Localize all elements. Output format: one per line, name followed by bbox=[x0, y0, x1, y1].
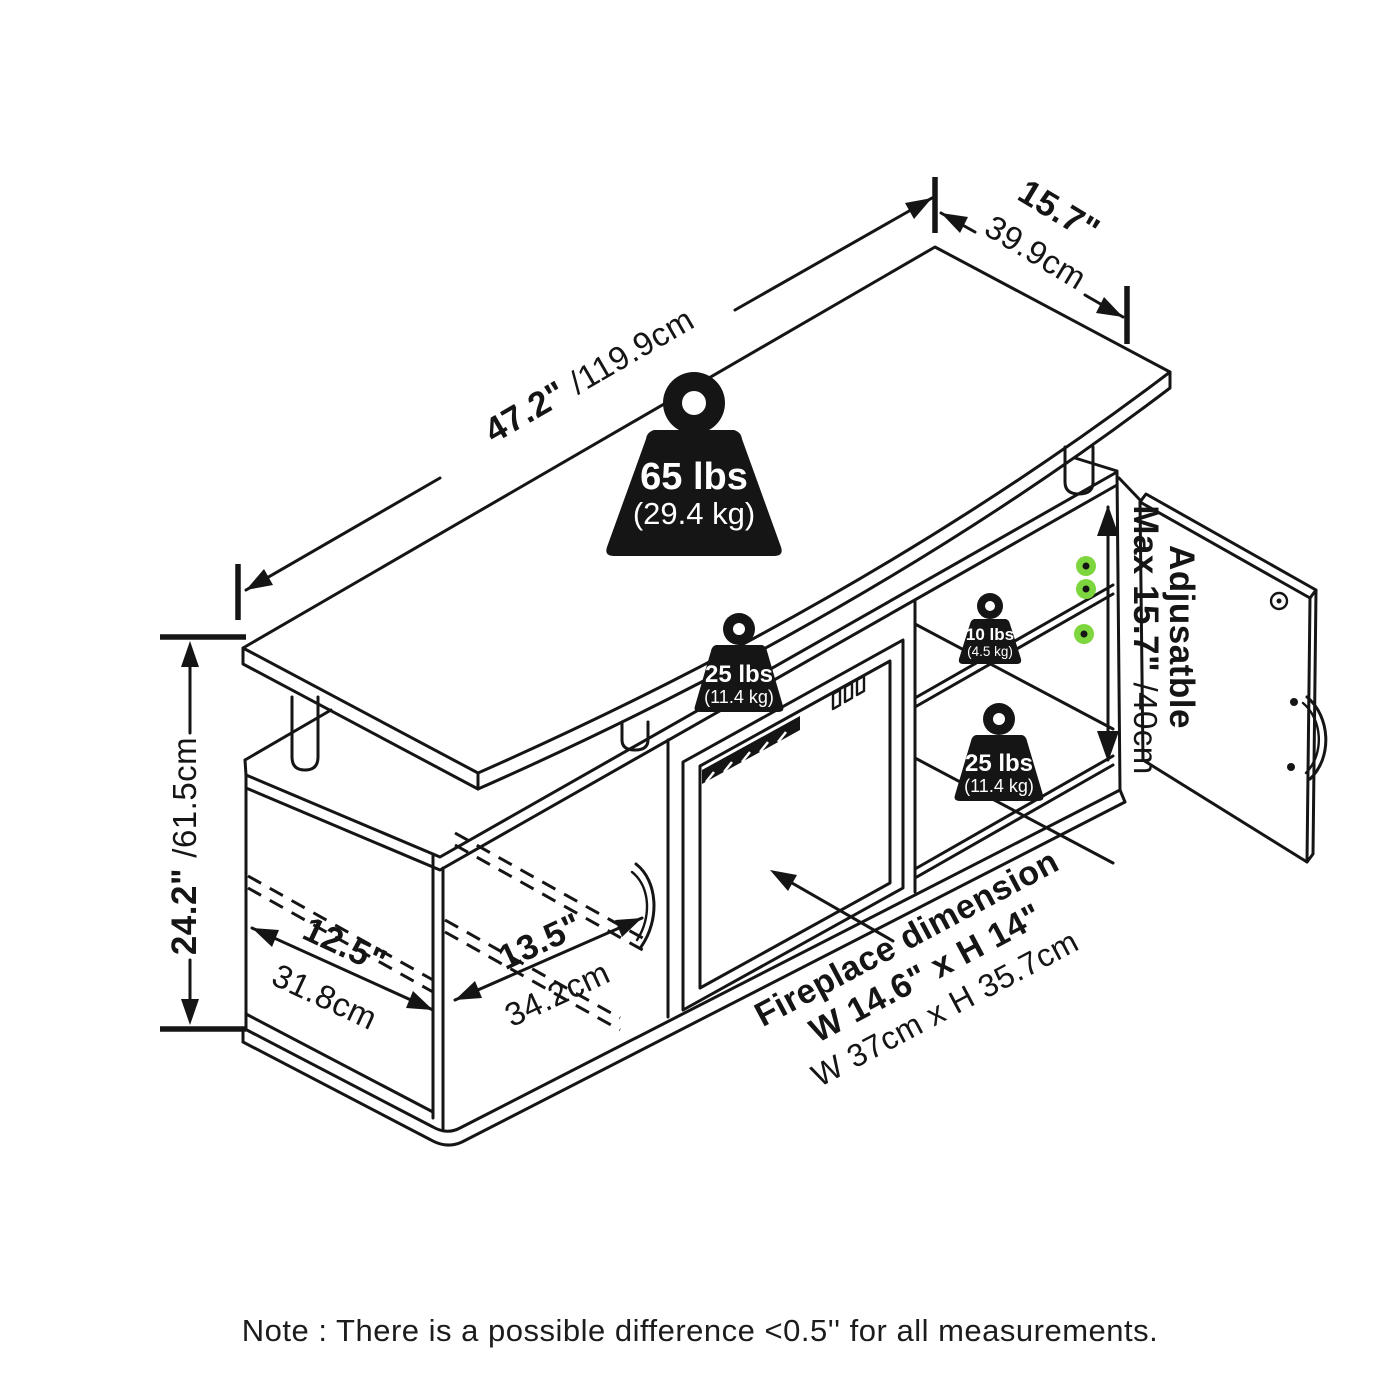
weight-icon-ring-hole bbox=[985, 601, 995, 611]
dim-center-door-width: 13.5" 34.2cm bbox=[455, 905, 642, 1033]
dim-top-width: 47.2" /119.9cm bbox=[238, 177, 935, 620]
dim-left-door-arrow-left bbox=[252, 928, 279, 947]
weight-middle-kg: (11.4 kg) bbox=[704, 687, 774, 707]
left-door-bottom-edge bbox=[246, 1014, 433, 1112]
weight-right-upper-kg: (4.5 kg) bbox=[967, 644, 1013, 659]
dim-depth-arrow-left bbox=[941, 213, 968, 233]
measurement-note: Note : There is a possible difference <0… bbox=[242, 1313, 1158, 1348]
weight-top-lbs: 65 lbs bbox=[640, 456, 748, 498]
weight-top-panel: 65 lbs (29.4 kg) bbox=[606, 372, 781, 556]
fireplace-switch-2 bbox=[845, 683, 852, 702]
dim-depth-arrow-right bbox=[1096, 297, 1123, 317]
open-door-handle-inner bbox=[1303, 703, 1319, 773]
dimension-diagram: 47.2" /119.9cm 15.7" 39.9cm 24.2" /61.5c… bbox=[0, 0, 1400, 1400]
open-door-hinge-line bbox=[1119, 478, 1141, 501]
dim-adjustable-shelf: Adjusatble Max 15.7" /40cm bbox=[1097, 505, 1201, 775]
shelf-pin-3-center bbox=[1081, 631, 1088, 638]
door-screw-center bbox=[1277, 599, 1282, 604]
body-top-right-edge bbox=[1075, 458, 1117, 471]
fireplace-callout-arrow bbox=[770, 870, 797, 891]
dim-top-depth: 15.7" 39.9cm bbox=[941, 172, 1127, 344]
dim-width-line-2 bbox=[735, 198, 932, 310]
weight-right-lower-lbs: 25 lbs bbox=[965, 750, 1033, 777]
body-right-edge bbox=[1117, 472, 1120, 790]
weight-top-kg: (29.4 kg) bbox=[633, 496, 755, 531]
weight-right-upper-lbs: 10 lbs bbox=[966, 625, 1014, 644]
fireplace-switch-3 bbox=[857, 676, 864, 695]
dim-adjustable-line1: Adjusatble bbox=[1162, 545, 1201, 729]
dim-height: 24.2" /61.5cm bbox=[160, 637, 246, 1029]
fireplace-switch-1 bbox=[833, 690, 840, 709]
weight-icon-ring-hole bbox=[993, 713, 1005, 725]
dim-adjustable-line2: Max 15.7" /40cm bbox=[1126, 505, 1165, 775]
dim-top-width-label: 47.2" /119.9cm bbox=[478, 299, 701, 450]
dim-height-arrow-down bbox=[181, 999, 199, 1025]
dim-width-line-1 bbox=[246, 478, 440, 590]
dim-height-label: 24.2" /61.5cm bbox=[165, 737, 204, 955]
door-hole-2 bbox=[1287, 763, 1295, 771]
fireplace-vent-grille bbox=[702, 716, 800, 784]
dim-left-door-arrow-right bbox=[406, 991, 433, 1010]
shelf-pin-1-center bbox=[1083, 563, 1090, 570]
top-panel-left-thickness bbox=[243, 648, 478, 789]
dim-left-door-width: 12.5" 31.8cm bbox=[252, 909, 433, 1036]
tv-stand-diagram-svg: 47.2" /119.9cm 15.7" 39.9cm 24.2" /61.5c… bbox=[0, 0, 1400, 1400]
dim-adjustable-arrow-down bbox=[1097, 731, 1119, 762]
base-right-corner bbox=[1120, 790, 1125, 802]
door-handle-inner bbox=[632, 872, 647, 940]
post-left bbox=[292, 697, 318, 770]
weight-middle-lbs: 25 lbs bbox=[705, 661, 773, 688]
weight-icon-ring-hole bbox=[682, 391, 706, 415]
dim-width-arrow-left bbox=[246, 569, 273, 590]
dim-height-arrow-up bbox=[181, 641, 199, 667]
weight-right-lower-kg: (11.4 kg) bbox=[964, 776, 1034, 796]
weight-right-lower-shelf: 25 lbs (11.4 kg) bbox=[955, 703, 1044, 801]
weight-right-upper-shelf: 10 lbs (4.5 kg) bbox=[959, 593, 1021, 664]
dim-center-door-arrow-left bbox=[455, 981, 482, 1000]
dim-adjustable-arrow-up bbox=[1097, 505, 1119, 536]
door-hole-1 bbox=[1290, 698, 1298, 706]
shelf-pin-2-center bbox=[1083, 586, 1090, 593]
body-top-left-corner bbox=[245, 760, 246, 775]
dim-width-arrow-right bbox=[905, 198, 932, 219]
weight-icon-ring-hole bbox=[733, 623, 745, 635]
